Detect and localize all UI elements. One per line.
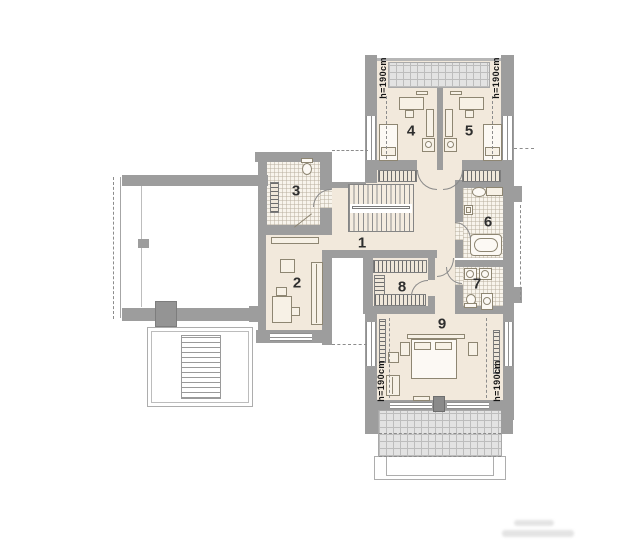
radiator xyxy=(270,182,279,213)
chair xyxy=(465,110,474,118)
wall xyxy=(455,188,463,222)
washbasin xyxy=(472,187,486,197)
window xyxy=(366,322,376,366)
wall xyxy=(377,58,501,61)
wall xyxy=(365,410,378,434)
dashed-roof-line xyxy=(332,150,368,151)
wall xyxy=(455,285,463,306)
radiator xyxy=(379,319,386,363)
height-label-top-left: h=190cm xyxy=(378,57,388,99)
wall xyxy=(437,160,443,170)
room-label-4: 4 xyxy=(407,123,415,140)
room-label-1: 1 xyxy=(358,235,366,252)
dashed-height-line xyxy=(386,96,387,159)
pillow xyxy=(381,147,396,156)
wall-stub xyxy=(138,239,149,248)
shelf xyxy=(450,91,462,95)
dashed-roof-line xyxy=(113,177,114,319)
desk xyxy=(459,97,484,110)
wall xyxy=(363,250,373,314)
room-label-3: 3 xyxy=(292,183,300,200)
side-table xyxy=(291,307,300,316)
pillow xyxy=(435,342,452,350)
vestibule-passage xyxy=(435,306,455,314)
dashed-height-line xyxy=(486,318,487,398)
room-label-6: 6 xyxy=(484,214,492,231)
dashed-height-line xyxy=(492,96,493,159)
dashed-roof-line xyxy=(332,344,367,345)
window xyxy=(366,116,376,160)
washbasin-counter xyxy=(486,187,503,196)
nightstand xyxy=(400,342,410,356)
dashed-roof-line xyxy=(520,205,521,300)
terrace-door xyxy=(433,396,445,412)
room-label-2: 2 xyxy=(293,275,301,292)
wall xyxy=(363,306,435,314)
toilet-seat xyxy=(466,207,471,213)
wall xyxy=(462,160,501,170)
watermark xyxy=(502,530,574,537)
wall xyxy=(428,258,435,280)
wardrobe-hatch xyxy=(462,170,501,182)
hall-door-gap xyxy=(437,250,455,258)
wardrobe-hatch xyxy=(373,260,427,273)
watermark xyxy=(514,520,554,526)
toilet-tank xyxy=(464,303,477,308)
wall xyxy=(455,240,463,258)
height-label-bottom-right: h=190cm xyxy=(492,360,502,402)
low-cabinet xyxy=(271,237,319,244)
wall xyxy=(363,250,437,258)
toilet-bowl xyxy=(302,163,312,175)
cabinet xyxy=(445,109,453,137)
desk xyxy=(272,296,292,323)
bench xyxy=(413,396,430,401)
height-label-top-right: h=190cm xyxy=(491,57,501,99)
wall xyxy=(377,160,417,170)
nightstand xyxy=(468,342,478,356)
tall-cabinet xyxy=(311,262,323,325)
wall xyxy=(122,308,266,321)
room-label-9: 9 xyxy=(438,316,446,333)
armchair xyxy=(280,259,295,273)
wall xyxy=(322,250,332,345)
room-label-7: 7 xyxy=(473,276,481,293)
dashed-terrace-line xyxy=(379,456,501,457)
skylight-ladder xyxy=(181,335,221,399)
floor-plan-canvas: 1 2 3 4 5 6 7 8 9 h=190cm h=190cm h=190c… xyxy=(0,0,638,556)
room-4-door-gap xyxy=(417,160,437,170)
window xyxy=(270,333,312,341)
wall-pilaster xyxy=(514,186,522,202)
top-skylight-terrace xyxy=(388,62,490,88)
desk xyxy=(399,97,424,110)
seat-cushion xyxy=(447,141,454,148)
wall xyxy=(501,410,513,434)
washbasin xyxy=(483,297,491,305)
washing-machine-drum xyxy=(481,270,489,278)
chair xyxy=(405,110,414,118)
terrace-step-inner xyxy=(386,456,494,476)
dashed-roof-line xyxy=(514,148,534,149)
dashed-height-line xyxy=(389,318,390,398)
room-8-door-gap xyxy=(428,280,435,296)
seat-cushion xyxy=(425,141,432,148)
chair xyxy=(276,287,287,296)
window xyxy=(447,402,489,409)
room-label-5: 5 xyxy=(465,123,473,140)
garage-edge-line xyxy=(120,177,121,318)
bathtub-basin xyxy=(474,238,498,252)
dresser-line xyxy=(392,377,393,394)
wall xyxy=(122,175,268,186)
cabinet xyxy=(426,109,434,137)
cabinet-line xyxy=(316,264,317,323)
chimney xyxy=(155,301,177,327)
shelf xyxy=(416,91,428,95)
room-5-door-gap xyxy=(443,160,462,170)
wall xyxy=(503,160,514,420)
room-label-8: 8 xyxy=(398,279,406,296)
wall xyxy=(437,88,443,170)
wardrobe-hatch xyxy=(378,170,417,182)
window xyxy=(504,322,513,366)
staircase-handrail xyxy=(352,206,410,209)
dashed-terrace-line xyxy=(379,433,501,434)
pillow xyxy=(414,342,431,350)
window xyxy=(502,116,513,160)
height-label-bottom-left: h=190cm xyxy=(376,360,386,402)
window xyxy=(390,402,432,409)
